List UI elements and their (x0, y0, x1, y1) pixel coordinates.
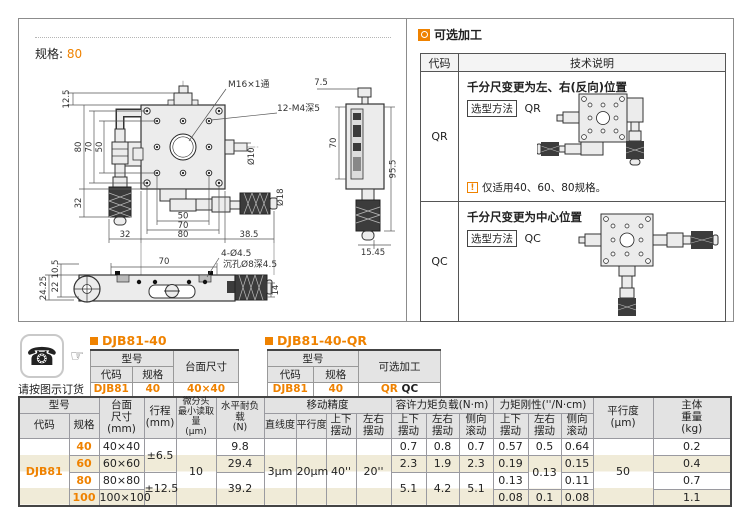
cell-surface: 40×40 (99, 438, 144, 455)
header-moment-group: 容许力矩负载(N·m) (391, 397, 493, 413)
side-view (346, 88, 384, 240)
svg-text:70: 70 (329, 138, 339, 149)
cell-code: DJB81 (19, 438, 69, 506)
square-bullet-icon (265, 337, 273, 345)
header-code: 代码 (91, 367, 133, 383)
svg-text:沉孔Ø8深4.5: 沉孔Ø8深4.5 (223, 259, 277, 270)
qc-code-cell: QC (421, 202, 459, 322)
qc-desc-cell: 千分尺变更为中心位置 选型方法 QC (459, 202, 726, 322)
cell-load: 29.4 (216, 455, 264, 472)
qr-note: ! 仅适用40、60、80规格。 (467, 180, 606, 195)
cell-rigid-pitch: 0.08 (493, 489, 528, 506)
table-row: DJB81 40 40×40 (91, 383, 239, 397)
order-spec: 40 (313, 383, 359, 397)
svg-text:70: 70 (85, 142, 95, 153)
table-row-40: DJB81 40 40×40 ±6.5 10 9.8 3μm 20μm 40''… (19, 438, 731, 455)
cell-surface: 100×100 (99, 489, 144, 506)
header-surface: 台面尺寸 (174, 350, 239, 383)
optional-machining-icon (418, 29, 430, 41)
header-spec: 规格 (313, 367, 359, 383)
svg-text:32: 32 (74, 198, 84, 209)
method-value: QC (525, 232, 541, 245)
phone-order-icon: ☎ (20, 334, 64, 378)
cell-moment-roll: 0.7 (459, 438, 493, 455)
cell-weight: 1.1 (653, 489, 731, 506)
main-drawing: 12.5 80 70 50 32 50 70 80 32 38.5 M16×1通… (21, 49, 403, 321)
svg-text:Ø18: Ø18 (275, 188, 286, 206)
header-moment-yaw: 左右 摆动 (426, 413, 459, 438)
cell-parallelism: 50 (593, 438, 653, 506)
header-moment-pitch: 上下 摆动 (391, 413, 426, 438)
cell-travel: ±6.5 (144, 438, 176, 472)
header-pitch: 上下 摆动 (326, 413, 356, 438)
cell-spec: 40 (69, 438, 99, 455)
col-header-code: 代码 (421, 54, 459, 72)
svg-text:14: 14 (271, 285, 281, 296)
svg-text:80: 80 (178, 230, 189, 240)
header-travel: 行程 (mm) (144, 397, 176, 438)
svg-text:24.25: 24.25 (39, 276, 49, 300)
cell-rigid-pitch: 0.13 (493, 472, 528, 489)
alert-icon: ! (467, 182, 478, 193)
cell-moment-yaw: 4.2 (426, 472, 459, 506)
header-rigid-pitch: 上下 摆动 (493, 413, 528, 438)
header-spec: 规格 (132, 367, 174, 383)
table-row-qr: QR 千分尺变更为左、右(反向)位置 选型方法 QR (421, 72, 726, 202)
order-code: DJB81 (91, 383, 133, 397)
svg-text:50: 50 (178, 212, 189, 222)
header-spec: 规格 (69, 413, 99, 438)
header-accuracy-group: 移动精度 (264, 397, 391, 413)
header-model: 型号 (19, 397, 99, 413)
svg-text:70: 70 (159, 257, 170, 267)
cell-rigid-pitch: 0.57 (493, 438, 528, 455)
header-code: 代码 (268, 367, 314, 383)
cell-spec: 60 (69, 455, 99, 472)
order-table-1: 型号 台面尺寸 代码 规格 DJB81 40 40×40 (90, 349, 239, 398)
optional-machining-table: 代码 技术说明 QR 千分尺变更为左、右(反向)位置 选型方法 QR (420, 53, 726, 322)
svg-text:4-Ø4.5: 4-Ø4.5 (221, 248, 251, 259)
header-rigid-roll: 侧向 滚动 (561, 413, 593, 438)
order-machining: QR QC (359, 383, 441, 397)
square-bullet-icon (90, 337, 98, 345)
cell-pitch: 40'' (326, 438, 356, 506)
svg-text:80: 80 (74, 142, 84, 153)
cell-rigid-pitch: 0.19 (493, 455, 528, 472)
order-example-1-title: DJB81-40 (90, 333, 167, 348)
header-rigid-yaw: 左右 摆动 (528, 413, 561, 438)
cell-moment-pitch: 2.3 (391, 455, 426, 472)
svg-text:15.45: 15.45 (361, 248, 385, 258)
col-header-desc: 技术说明 (459, 54, 726, 72)
cell-moment-yaw: 1.9 (426, 455, 459, 472)
table-row-qc: QC 千分尺变更为中心位置 选型方法 QC (421, 202, 726, 322)
svg-text:95.5: 95.5 (389, 160, 399, 179)
cell-micrometer: 10 (176, 438, 216, 506)
order-code: DJB81 (268, 383, 314, 397)
catalog-page: { "colors": { "accent": "#ef8200", "stri… (0, 0, 748, 512)
svg-text:10.5: 10.5 (51, 260, 61, 279)
header-moment-roll: 侧向 滚动 (459, 413, 493, 438)
svg-text:Ø10: Ø10 (246, 147, 257, 165)
header-code: 代码 (19, 413, 69, 438)
order-spec: 40 (132, 383, 174, 397)
cell-weight: 0.4 (653, 455, 731, 472)
header-model: 型号 (91, 350, 174, 367)
svg-text:32: 32 (120, 230, 131, 240)
svg-text:22: 22 (51, 282, 61, 293)
pointer-hand-icon: ☞ (70, 346, 84, 365)
cell-rigid-roll: 0.15 (561, 455, 593, 472)
spec-table: 型号 台面 尺寸 (mm) 行程 (mm) 微分头 最小读取量 (μm) 水平耐… (18, 396, 732, 507)
svg-text:M16×1通: M16×1通 (228, 79, 270, 90)
qr-code-cell: QR (421, 72, 459, 202)
cell-surface: 80×80 (99, 472, 144, 489)
cell-spec: 80 (69, 472, 99, 489)
cell-moment-yaw: 0.8 (426, 438, 459, 455)
order-example-2-title: DJB81-40-QR (265, 333, 367, 348)
svg-text:12.5: 12.5 (62, 90, 72, 109)
cell-yaw: 20'' (356, 438, 391, 506)
order-caption: 请按图示订货 (18, 381, 84, 397)
cell-moment-roll: 5.1 (459, 472, 493, 506)
header-parallelism: 平行度 (μm) (593, 397, 653, 438)
cell-rigid-roll: 0.64 (561, 438, 593, 455)
header-rigidity-group: 力矩刚性(''/N·cm) (493, 397, 593, 413)
svg-text:7.5: 7.5 (314, 78, 328, 88)
cell-load: 9.8 (216, 438, 264, 455)
svg-text:38.5: 38.5 (240, 230, 259, 240)
top-frame: 规格: 80 (18, 18, 734, 322)
qc-figure (571, 208, 721, 320)
method-label: 选型方法 (467, 230, 517, 247)
cell-weight: 0.7 (653, 472, 731, 489)
cell-rigid-roll: 0.11 (561, 472, 593, 489)
cell-rigid-yaw: 0.5 (528, 438, 561, 455)
phone-icon: ☎ (26, 342, 57, 371)
cell-straightness: 3μm (264, 438, 296, 506)
table-row: DJB81 40 QR QC (268, 383, 441, 397)
cell-surface: 60×60 (99, 455, 144, 472)
bottom-micrometer (160, 189, 277, 214)
panel-divider (406, 19, 407, 321)
optional-machining-title: 可选加工 (418, 26, 482, 43)
order-surface: 40×40 (174, 383, 239, 397)
order-table-2: 型号 可选加工 代码 规格 DJB81 40 QR QC (267, 349, 441, 398)
header-parallel-acc: 平行度 (296, 413, 326, 438)
qr-desc-cell: 千分尺变更为左、右(反向)位置 选型方法 QR (459, 72, 726, 202)
dotted-rule (35, 37, 391, 38)
header-yaw: 左右 摆动 (356, 413, 391, 438)
cell-parallel-acc: 20μm (296, 438, 326, 506)
cell-moment-roll: 2.3 (459, 455, 493, 472)
left-micrometer (109, 113, 143, 225)
optional-machining-label: 可选加工 (434, 26, 482, 43)
method-label: 选型方法 (467, 100, 517, 117)
cell-rigid-roll: 0.08 (561, 489, 593, 506)
header-weight: 主体 重量 (kg) (653, 397, 731, 438)
cell-spec: 100 (69, 489, 99, 506)
header-load: 水平耐负载 (N) (216, 397, 264, 438)
cell-rigid-yaw: 0.1 (528, 489, 561, 506)
cell-moment-pitch: 0.7 (391, 438, 426, 455)
header-surface: 台面 尺寸 (mm) (99, 397, 144, 438)
header-machining: 可选加工 (359, 350, 441, 383)
cell-weight: 0.2 (653, 438, 731, 455)
cell-rigid-yaw: 0.13 (528, 455, 561, 489)
header-straightness: 直线度 (264, 413, 296, 438)
cell-moment-pitch: 5.1 (391, 472, 426, 506)
cell-load: 39.2 (216, 472, 264, 506)
header-micrometer: 微分头 最小读取量 (μm) (176, 397, 216, 438)
svg-text:12-M4深5: 12-M4深5 (277, 103, 320, 114)
svg-text:50: 50 (95, 142, 105, 153)
header-model: 型号 (268, 350, 359, 367)
qr-figure (537, 92, 677, 184)
